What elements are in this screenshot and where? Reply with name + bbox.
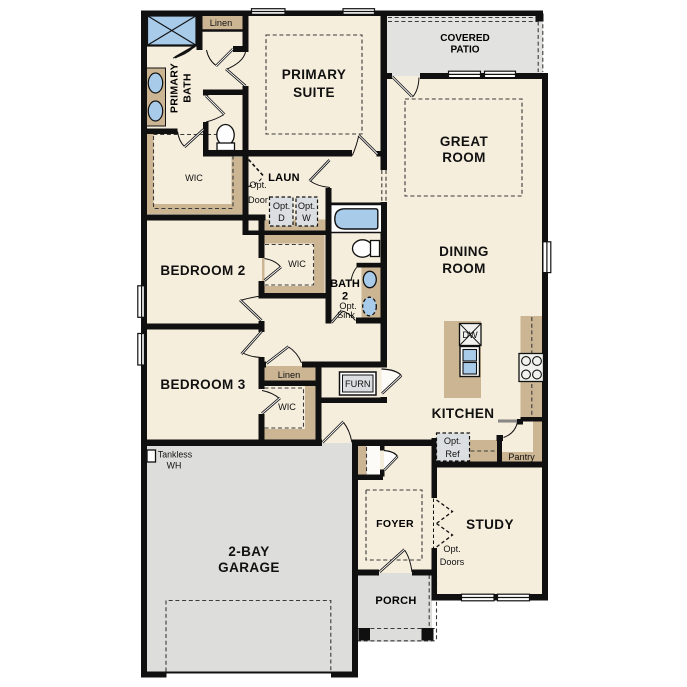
svg-text:Sink: Sink: [337, 310, 355, 320]
svg-text:W: W: [302, 213, 311, 223]
svg-text:2-BAY: 2-BAY: [228, 544, 269, 559]
svg-text:DW: DW: [462, 330, 478, 340]
svg-text:ROOM: ROOM: [442, 150, 486, 165]
svg-text:DINING: DINING: [439, 244, 489, 259]
svg-text:BATH: BATH: [182, 73, 194, 103]
svg-text:LAUN: LAUN: [268, 172, 300, 184]
svg-text:Opt.: Opt.: [298, 201, 315, 211]
svg-text:FURN: FURN: [345, 379, 371, 389]
svg-text:FOYER: FOYER: [376, 518, 414, 530]
svg-text:ROOM: ROOM: [442, 261, 486, 276]
svg-text:SUITE: SUITE: [293, 85, 335, 100]
svg-text:BEDROOM 3: BEDROOM 3: [160, 377, 245, 392]
svg-text:D: D: [278, 213, 285, 223]
svg-text:Opt.: Opt.: [443, 544, 460, 554]
svg-text:Opt.: Opt.: [249, 180, 266, 190]
svg-text:PRIMARY: PRIMARY: [282, 67, 347, 82]
svg-text:WIC: WIC: [185, 173, 203, 183]
svg-text:GARAGE: GARAGE: [218, 560, 280, 575]
svg-text:KITCHEN: KITCHEN: [432, 406, 495, 421]
svg-text:Door: Door: [248, 195, 268, 205]
svg-text:PRIMARY: PRIMARY: [169, 63, 181, 113]
svg-text:Linen: Linen: [278, 370, 300, 380]
svg-text:BEDROOM 2: BEDROOM 2: [160, 263, 245, 278]
svg-text:Opt.: Opt.: [273, 201, 290, 211]
svg-text:STUDY: STUDY: [466, 517, 514, 532]
svg-text:Tankless: Tankless: [158, 450, 193, 460]
svg-text:WIC: WIC: [288, 259, 306, 269]
svg-text:GREAT: GREAT: [440, 134, 489, 149]
svg-text:Pantry: Pantry: [508, 452, 535, 462]
svg-text:PORCH: PORCH: [375, 595, 416, 607]
svg-text:Opt.: Opt.: [444, 436, 461, 446]
svg-text:Doors: Doors: [440, 557, 465, 567]
svg-text:WH: WH: [167, 461, 182, 471]
svg-text:BATH: BATH: [330, 278, 360, 290]
svg-text:Linen: Linen: [210, 18, 232, 28]
svg-text:WIC: WIC: [278, 402, 296, 412]
svg-text:Ref: Ref: [445, 449, 460, 459]
svg-text:COVERED: COVERED: [440, 33, 489, 44]
svg-text:PATIO: PATIO: [450, 45, 479, 56]
